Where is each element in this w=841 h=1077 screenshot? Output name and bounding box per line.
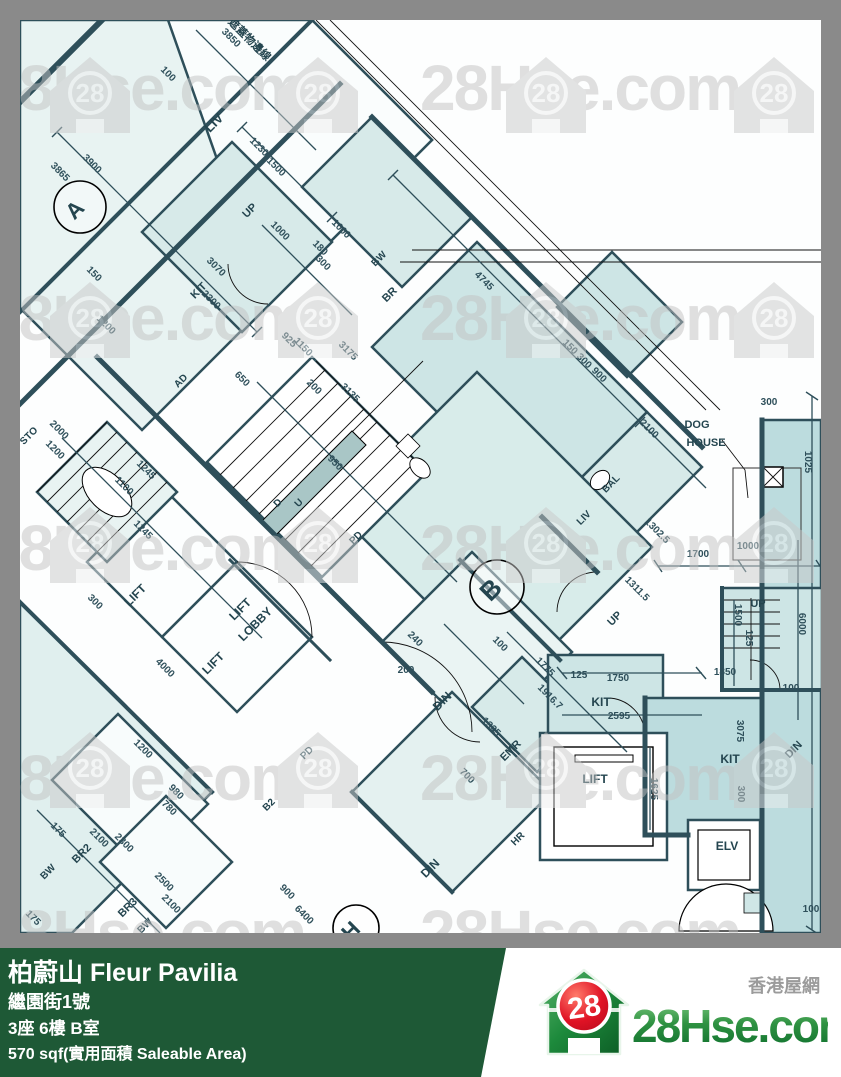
- room-label: UP: [750, 598, 765, 610]
- watermark-badge-number: 28: [76, 78, 105, 108]
- dim-label: 2595: [608, 711, 631, 722]
- watermark-badge-number: 28: [304, 753, 333, 783]
- dim-label: 3075: [734, 720, 745, 743]
- watermark-text: 28Hse.com: [0, 742, 305, 814]
- floorplan-image: LIVUPBWBRKITADSTOBALLIVLIFTLIFTLOBBYLIFT…: [0, 0, 841, 948]
- site-logo[interactable]: 28 28Hse.com 香港屋網: [528, 958, 828, 1073]
- logo-site-name: 28Hse.com: [632, 1000, 828, 1052]
- room-label: KIT: [591, 695, 611, 709]
- watermark-badge-number: 28: [532, 528, 561, 558]
- dim-label: 1500: [732, 604, 743, 627]
- unit-info: 3座 6樓 B室: [8, 1014, 100, 1039]
- area-info: 570 sqf(實用面積 Saleable Area): [8, 1040, 247, 1064]
- watermark-text: 28Hse.com: [0, 52, 305, 124]
- dim-label: 125: [571, 670, 588, 681]
- estate-title: 柏蔚山 Fleur Pavilia: [8, 953, 237, 989]
- dim-label: 1750: [607, 673, 630, 684]
- dim-label: 6000: [796, 613, 807, 636]
- dim-label: 100: [783, 683, 800, 694]
- room-label: DOG: [684, 419, 709, 431]
- watermark-text: 28Hse.com: [0, 512, 305, 584]
- dim-label: 200: [398, 665, 415, 676]
- dim-label: 100: [803, 904, 820, 915]
- logo-house-icon: 28: [540, 970, 628, 1054]
- room-label: ELV: [716, 839, 738, 853]
- watermark-text: 28Hse.com: [0, 282, 305, 354]
- estate-address: 繼園街1號: [8, 988, 90, 1014]
- logo-badge-number: 28: [565, 989, 603, 1026]
- watermark-badge-number: 28: [760, 303, 789, 333]
- dim-label: 1850: [714, 667, 737, 678]
- watermark-badge-number: 28: [304, 528, 333, 558]
- watermark-badge-number: 28: [760, 753, 789, 783]
- dim-label: 125: [743, 630, 754, 647]
- watermark-badge-number: 28: [532, 753, 561, 783]
- watermark-badge-number: 28: [760, 528, 789, 558]
- watermark-badge-number: 28: [76, 528, 105, 558]
- watermark-badge-number: 28: [76, 303, 105, 333]
- dim-label: 300: [761, 397, 778, 408]
- watermark-badge-number: 28: [532, 303, 561, 333]
- watermark-badge-number: 28: [76, 753, 105, 783]
- watermark-badge-number: 28: [304, 303, 333, 333]
- floorplan-page: LIVUPBWBRKITADSTOBALLIVLIFTLIFTLOBBYLIFT…: [0, 0, 841, 1077]
- watermark-badge-number: 28: [532, 78, 561, 108]
- room-label: HOUSE: [686, 437, 725, 449]
- logo-tagline: 香港屋網: [747, 975, 820, 996]
- watermark-badge-number: 28: [760, 78, 789, 108]
- watermark-badge-number: 28: [304, 78, 333, 108]
- dim-label: 1025: [802, 451, 813, 474]
